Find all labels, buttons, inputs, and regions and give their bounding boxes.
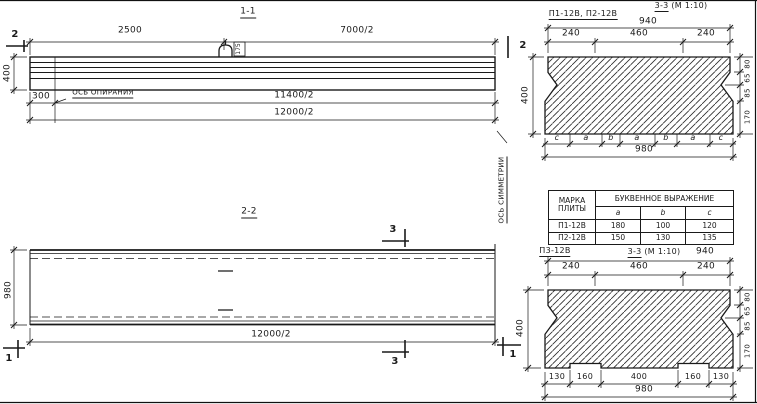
letter-b-2: b: [663, 134, 668, 142]
dim-240-left: 240: [562, 30, 580, 39]
row1-mark: П1-12В: [549, 220, 596, 233]
row2-c: 135: [686, 232, 734, 245]
letter-c-1: c: [555, 134, 560, 142]
support-axis-label: ОСЬ ОПИРАНИЯ: [72, 90, 133, 99]
center-dash-marks: [218, 271, 233, 310]
table-group-header: БУКВЕННОЕ ВЫРАЖЕНИЕ: [596, 191, 734, 207]
section-mark-2-right: 2: [519, 41, 526, 51]
section-mark-1-left: 1: [5, 354, 12, 364]
row1-a: 180: [596, 220, 641, 233]
letter-a-1: a: [583, 134, 588, 142]
plate-table: МАРКА ПЛИТЫ БУКВЕННОЕ ВЫРАЖЕНИЕ a b c П1…: [548, 190, 734, 245]
dim-130-right: 130: [713, 373, 729, 381]
dim-11400-2: 11400/2: [274, 92, 314, 101]
section-mark-3-bottom: 3: [391, 357, 398, 367]
section-3-3-bottom: [545, 290, 733, 368]
section-3-3-top: [545, 57, 733, 134]
symmetry-axis-label: ОСЬ СИММЕТРИИ: [499, 157, 508, 224]
section-mark-1-right: 1: [509, 350, 516, 360]
dim-940-top: 940: [639, 18, 657, 27]
dim-85-bottom: 85: [745, 321, 752, 331]
plate-p3-label: П3-12В: [539, 247, 570, 257]
dim-400-section-top: 400: [522, 86, 531, 104]
dim-980-section-top: 980: [635, 146, 653, 155]
dim-980-section-bottom: 980: [635, 386, 653, 395]
table-col-c: c: [686, 207, 734, 220]
dim-80-bottom: 80: [745, 292, 752, 302]
row1-b: 100: [641, 220, 686, 233]
dim-940-bottom: 940: [696, 248, 714, 257]
row1-c: 120: [686, 220, 734, 233]
table-row: П1-12В 180 100 120: [549, 220, 734, 233]
dim-400-section-bottom: 400: [517, 319, 526, 337]
section-mark-2-left: 2: [11, 30, 18, 40]
table-row: П2-12В 150 130 135: [549, 232, 734, 245]
dim-130-left: 130: [549, 373, 565, 381]
dim-460-b: 460: [630, 263, 648, 272]
dim-160-right: 160: [685, 373, 701, 381]
section-scale: (М 1:10): [644, 247, 680, 256]
row2-a: 150: [596, 232, 641, 245]
view-1-1-title: 1-1: [240, 8, 256, 19]
dim-400-groove: 400: [631, 373, 647, 381]
dim-170-top: 170: [745, 110, 752, 124]
dim-80-top: 80: [745, 59, 752, 69]
section-mark-3-top: 3: [389, 225, 396, 235]
dim-240-right: 240: [697, 30, 715, 39]
section-cut-marks: [3, 36, 521, 358]
loop-height-label: 175: [236, 43, 242, 54]
letter-b-1: b: [608, 134, 613, 142]
lifting-loop: [219, 41, 232, 57]
dim-240-left-b: 240: [562, 263, 580, 272]
dim-300: 300: [32, 93, 50, 102]
dim-12000-2-plan: 12000/2: [251, 331, 291, 340]
dim-85-top: 85: [745, 88, 752, 98]
view-2-2-title: 2-2: [241, 208, 257, 219]
letter-a-2: a: [634, 134, 639, 142]
section-title-number: 3-3: [655, 1, 669, 12]
letter-c-2: c: [719, 134, 724, 142]
dim-65-bottom: 65: [745, 306, 752, 316]
dim-12000-2-elevation: 12000/2: [274, 109, 314, 118]
table-header-row: МАРКА ПЛИТЫ БУКВЕННОЕ ВЫРАЖЕНИЕ: [549, 191, 734, 207]
section-3-3-bottom-title: 3-3 (М 1:10): [628, 248, 681, 256]
view-2-2-plate: [30, 244, 495, 342]
dim-7000-2: 7000/2: [340, 27, 373, 36]
row2-mark: П2-12В: [549, 232, 596, 245]
plates-p1-p2-label: П1-12В, П2-12В: [549, 10, 618, 20]
dim-980-plan: 980: [5, 281, 14, 299]
table-col-b: b: [641, 207, 686, 220]
engineering-drawing: 1-1 2500 7000/2 2 2 400 300 ОСЬ ОПИРАНИЯ…: [0, 0, 757, 404]
section-title-number: 3-3: [628, 247, 642, 258]
row2-b: 130: [641, 232, 686, 245]
table-col1-header: МАРКА ПЛИТЫ: [549, 191, 596, 220]
letter-a-3: a: [690, 134, 695, 142]
dim-65-top: 65: [745, 73, 752, 83]
section-3-3-top-title: 3-3 (М 1:10): [655, 2, 708, 10]
dim-460: 460: [630, 30, 648, 39]
dim-2500: 2500: [118, 27, 142, 36]
section-scale: (М 1:10): [671, 1, 707, 10]
dim-400-elevation: 400: [4, 64, 13, 82]
view-1-1-beam: [30, 41, 495, 90]
dim-240-right-b: 240: [697, 263, 715, 272]
dim-170-bottom: 170: [745, 344, 752, 358]
dim-160-left: 160: [577, 373, 593, 381]
table-col-a: a: [596, 207, 641, 220]
